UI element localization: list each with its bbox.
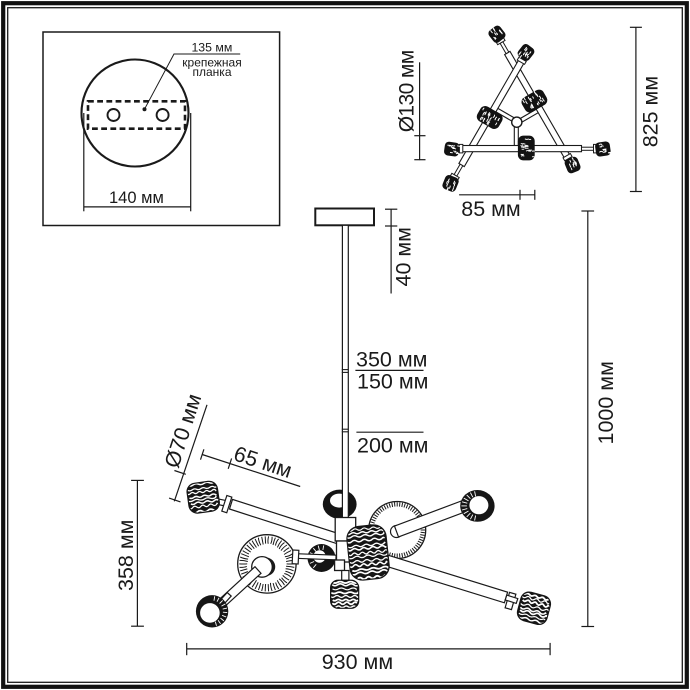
- svg-text:358 мм: 358 мм: [114, 520, 138, 591]
- svg-text:825 мм: 825 мм: [638, 76, 662, 147]
- svg-text:200 мм: 200 мм: [357, 433, 428, 457]
- svg-text:150 мм: 150 мм: [357, 370, 428, 394]
- svg-text:930 мм: 930 мм: [322, 650, 393, 674]
- svg-text:40 мм: 40 мм: [392, 227, 416, 286]
- svg-text:140 мм: 140 мм: [109, 189, 164, 207]
- svg-text:135 мм: 135 мм: [191, 41, 232, 55]
- svg-text:1000 мм: 1000 мм: [594, 361, 618, 444]
- svg-text:Ø130 мм: Ø130 мм: [395, 50, 418, 132]
- svg-text:планка: планка: [193, 65, 232, 79]
- svg-text:85 мм: 85 мм: [461, 197, 520, 221]
- svg-text:350 мм: 350 мм: [356, 348, 427, 372]
